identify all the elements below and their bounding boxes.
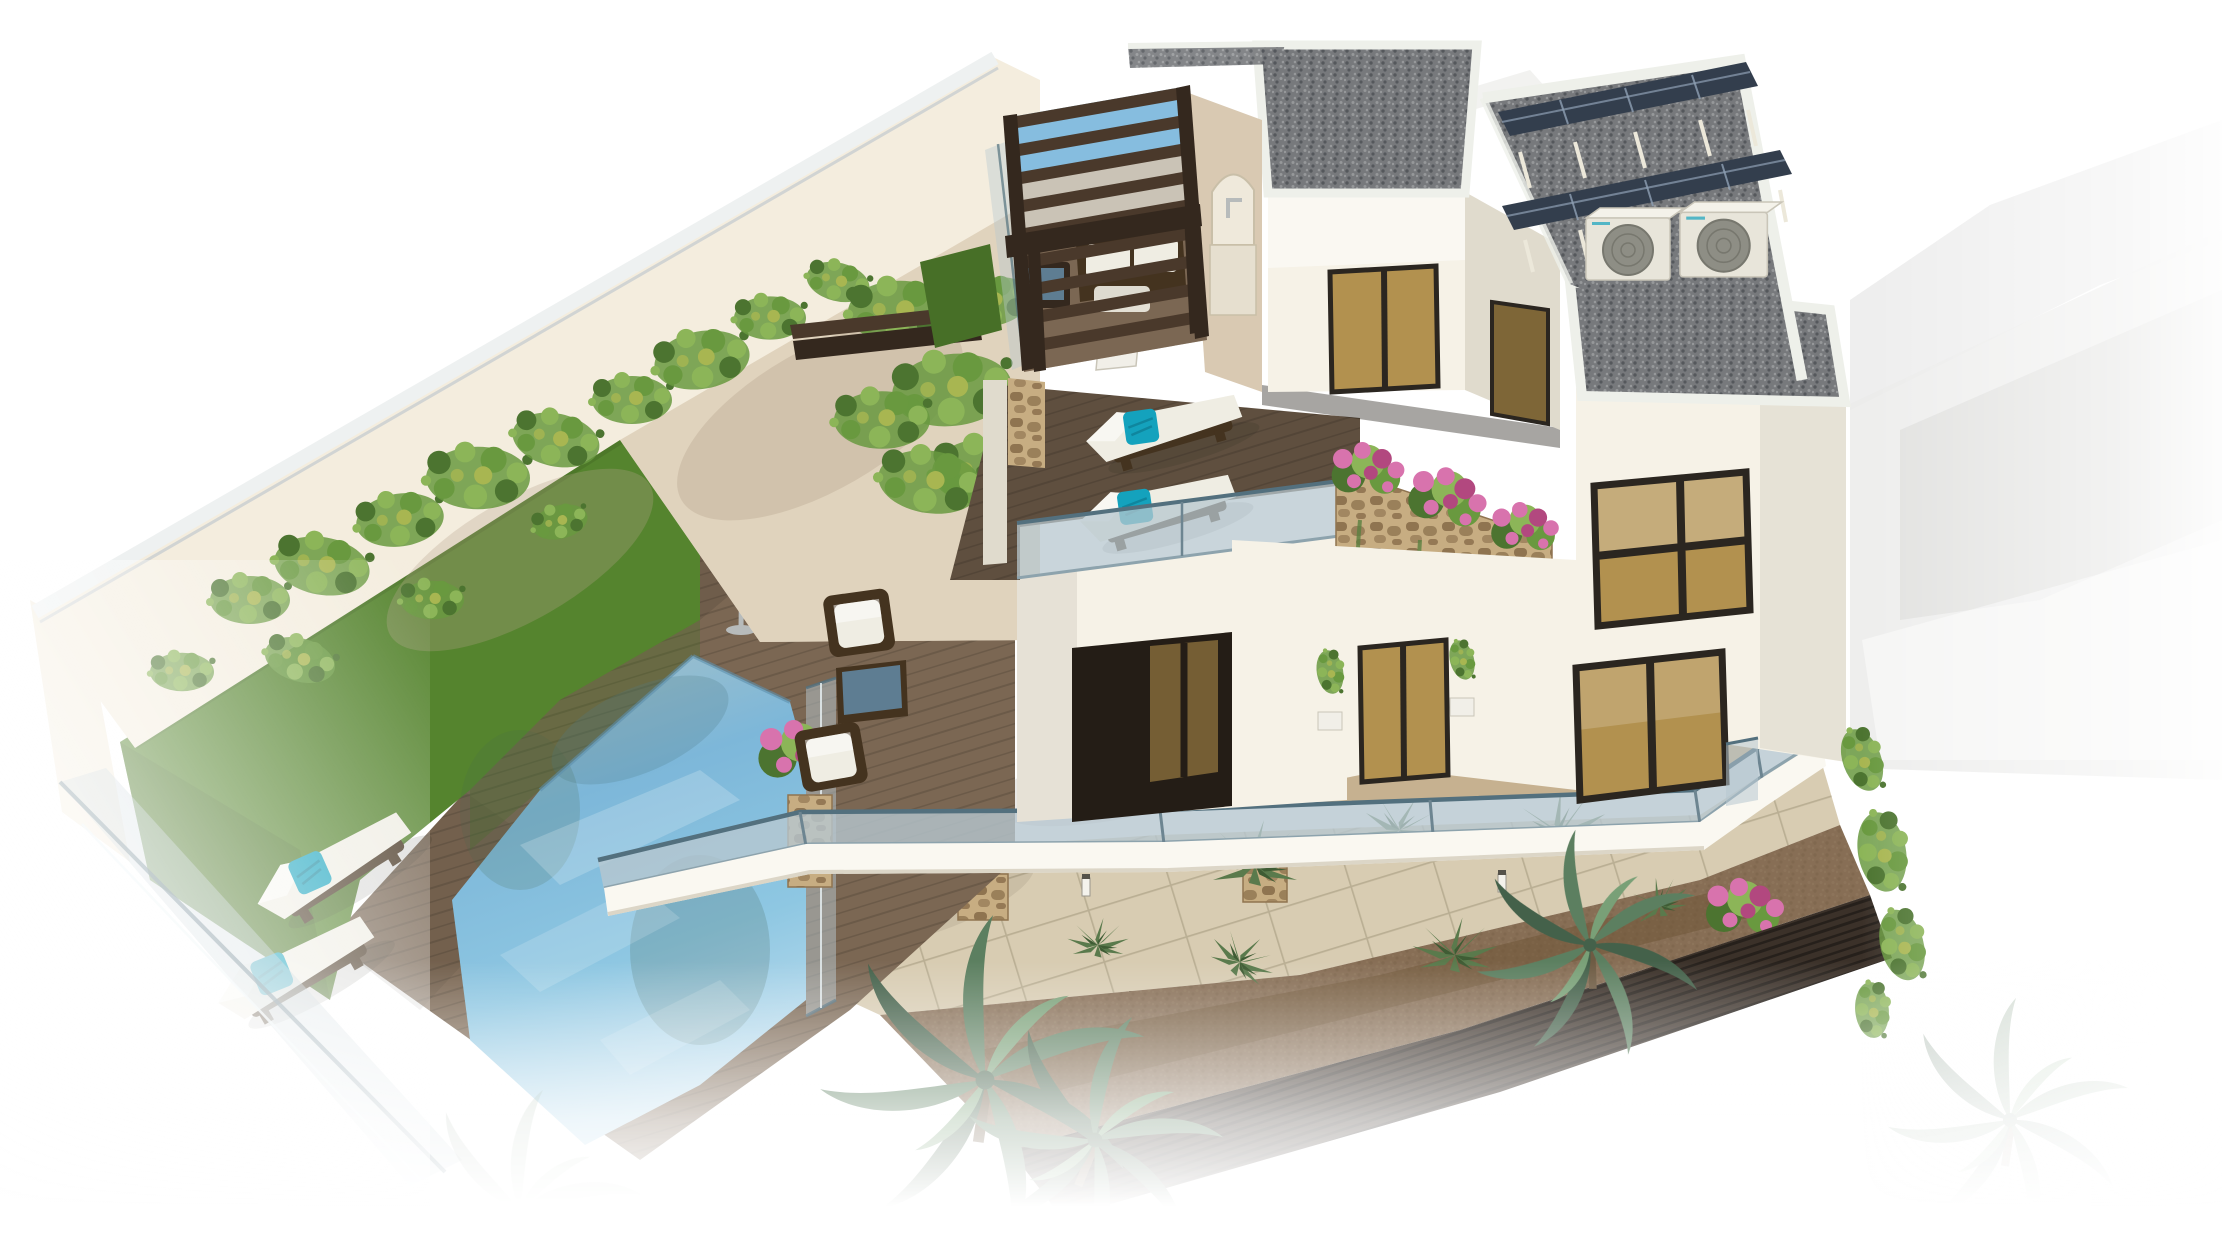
sink-niche — [1212, 174, 1254, 245]
left-fade — [0, 560, 430, 1250]
ac-unit — [1586, 208, 1684, 280]
villa-render: Aerial isometric 3D architectural render… — [0, 0, 2222, 1250]
side-glass-door — [1492, 302, 1548, 424]
terrace-column — [983, 380, 1007, 565]
rattan-armchair — [822, 588, 896, 659]
tower-window-lower — [1576, 652, 1726, 800]
bollard-light — [1082, 874, 1090, 896]
ac-unit — [1680, 202, 1782, 277]
pergola — [1003, 85, 1209, 372]
coffee-table — [836, 660, 908, 724]
rattan-armchair — [793, 721, 869, 794]
stone-patch — [1008, 378, 1045, 468]
tower-window-upper — [1594, 472, 1750, 626]
right-fade — [1860, 0, 2222, 1250]
villa-render-svg: Aerial isometric 3D architectural render… — [0, 0, 2222, 1250]
ground-floor-wall — [1232, 540, 1576, 800]
tower — [1570, 282, 1846, 806]
corner-glass-balustrade — [1726, 738, 1758, 806]
